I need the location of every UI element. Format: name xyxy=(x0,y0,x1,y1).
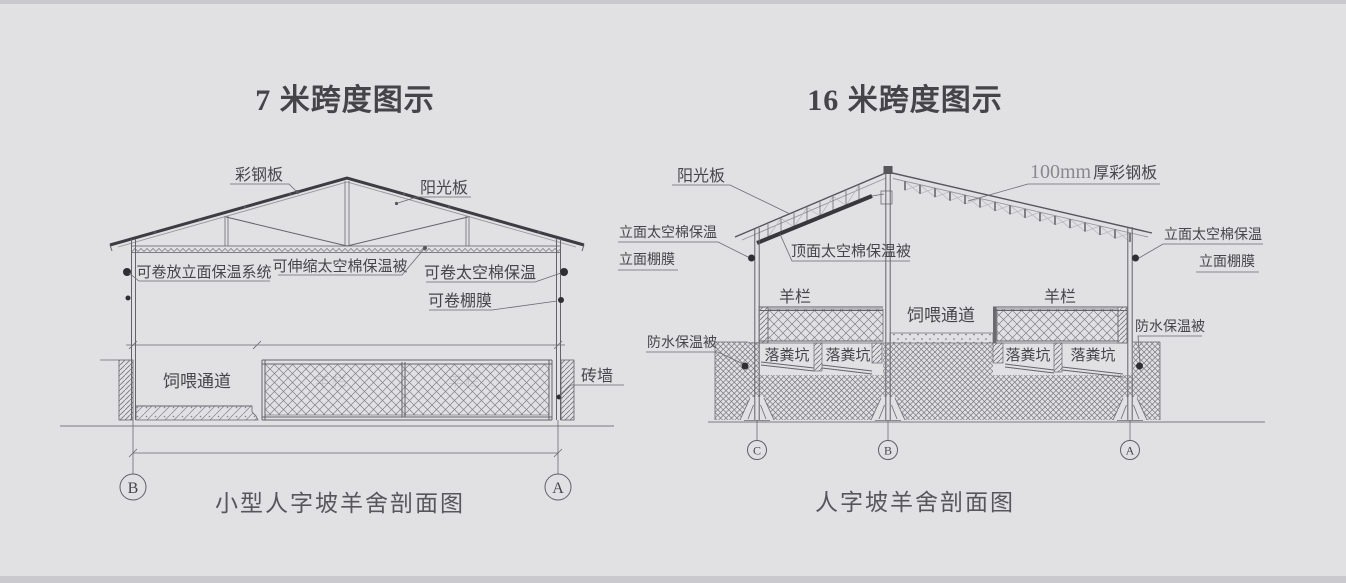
left-title: 7 米跨度图示 xyxy=(255,84,435,117)
label-facade-film-right: 立面棚膜 xyxy=(1199,254,1255,270)
ridge-cap xyxy=(884,166,893,174)
left-caption: 小型人字坡羊舍剖面图 xyxy=(215,491,465,516)
technical-drawing: 7 米跨度图示 xyxy=(0,0,1346,583)
axis-letter-C: C xyxy=(753,444,761,458)
waterproof-roller-dot-right xyxy=(1136,363,1143,370)
axis-letter-A: A xyxy=(552,480,564,497)
left-roller-dot xyxy=(123,268,131,276)
label-sun-panel: 阳光板 xyxy=(420,179,468,197)
facade-roller-dot-left xyxy=(748,255,755,262)
page-bottom-edge xyxy=(0,576,1346,583)
label-waterproof-right: 防水保温被 xyxy=(1135,319,1205,335)
label-facade-system: 可卷放立面保温系统 xyxy=(136,264,271,281)
label-manure-pit: 落粪坑 xyxy=(1070,347,1115,364)
label-steel-panel: 100mm厚彩钢板 xyxy=(1030,161,1157,183)
right-title: 16 米跨度图示 xyxy=(807,84,1003,117)
page-top-edge xyxy=(0,0,1346,4)
pen-fence-right xyxy=(997,309,1118,341)
right-brick-wall xyxy=(561,360,574,420)
facade-roller-dot-right xyxy=(1132,255,1139,262)
left-brick-wall xyxy=(119,360,133,420)
left-ceiling-quilt-band xyxy=(132,246,561,253)
label-waterproof-left: 防水保温被 xyxy=(647,335,717,351)
label-right-insulation: 可卷太空棉保温 xyxy=(424,264,536,282)
pen-fence-left xyxy=(768,309,883,341)
feed-passage-floor xyxy=(890,333,993,343)
drawing-page: 7 米跨度图示 xyxy=(0,0,1346,583)
axis-letter-A: A xyxy=(1126,444,1135,458)
label-roof-panel: 彩钢板 xyxy=(235,166,283,184)
label-sun-panel: 阳光板 xyxy=(677,167,725,185)
label-facade-insulation-right: 立面太空棉保温 xyxy=(1164,226,1262,243)
sheep-pen-fence xyxy=(265,364,549,415)
label-manure-pit: 落粪坑 xyxy=(764,347,809,364)
label-manure-pit: 落粪坑 xyxy=(825,347,870,364)
label-facade-film-left: 立面棚膜 xyxy=(619,252,675,268)
axis-letter-B: B xyxy=(128,480,139,497)
label-facade-insulation-left: 立面太空棉保温 xyxy=(619,224,717,241)
pen-watermark: 羊栏 xyxy=(448,373,482,390)
right-roller-dot xyxy=(560,268,568,276)
axis-letter-B: B xyxy=(884,444,892,458)
label-right-film: 可卷棚膜 xyxy=(428,292,492,310)
right-caption: 人字坡羊舍剖面图 xyxy=(815,490,1015,515)
label-feed-passage: 饲喂通道 xyxy=(907,306,975,325)
label-manure-pit: 落粪坑 xyxy=(1005,347,1050,364)
label-pen-left: 羊栏 xyxy=(779,288,811,306)
label-feed-passage: 饲喂通道 xyxy=(163,372,231,391)
label-pen-right: 羊栏 xyxy=(1044,288,1076,306)
label-ceiling-quilt: 可伸缩太空棉保温被 xyxy=(272,258,407,275)
feed-passage-slab xyxy=(136,406,258,420)
page-background xyxy=(0,0,1346,583)
label-brick-wall: 砖墙 xyxy=(581,367,613,385)
pen-watermark: 羊栏 xyxy=(315,373,349,390)
label-roof-quilt: 顶面太空棉保温被 xyxy=(791,243,911,260)
